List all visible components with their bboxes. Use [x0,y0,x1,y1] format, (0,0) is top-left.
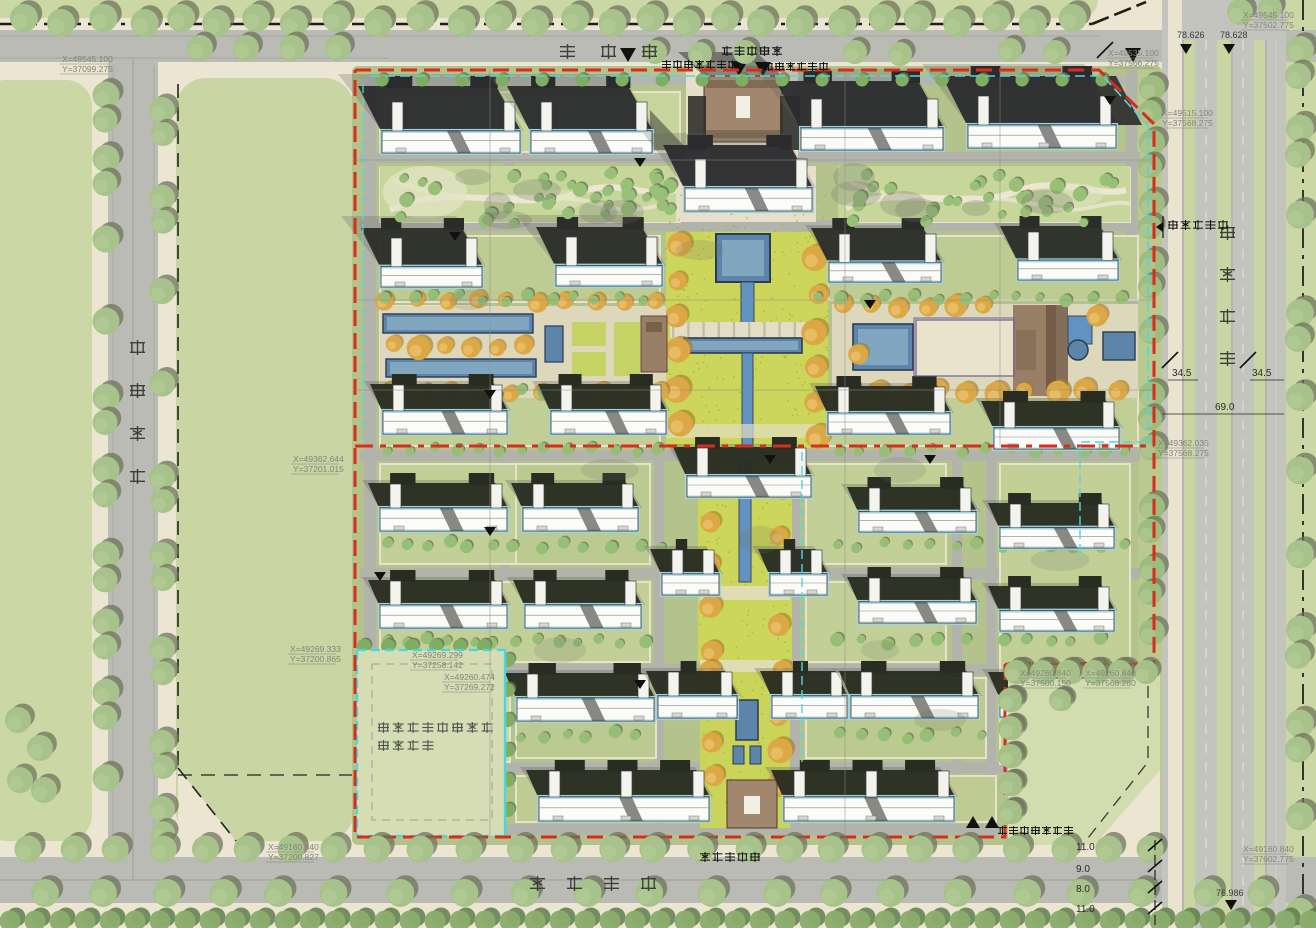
svg-text:X=49269.333: X=49269.333 [290,644,341,654]
svg-text:X=49535.100: X=49535.100 [1108,48,1159,58]
svg-text:Y=37200.827: Y=37200.827 [268,852,319,862]
svg-text:X=49545.100: X=49545.100 [1243,10,1294,20]
svg-text:78.628: 78.628 [1220,30,1248,40]
svg-text:78.626: 78.626 [1177,30,1205,40]
svg-text:X=49260.474: X=49260.474 [444,672,495,682]
svg-text:69.0: 69.0 [1215,402,1235,413]
svg-text:Y=37568.280: Y=37568.280 [1085,678,1136,688]
svg-text:Y=37269.272: Y=37269.272 [444,682,495,692]
svg-text:34.5: 34.5 [1252,368,1272,379]
svg-text:Y=37602.775: Y=37602.775 [1243,854,1294,864]
svg-text:76.986: 76.986 [1216,888,1244,898]
svg-text:X=49160.840: X=49160.840 [1243,844,1294,854]
svg-text:Y=37566.275: Y=37566.275 [1108,58,1159,68]
svg-text:11.0: 11.0 [1076,842,1095,853]
svg-text:X=49260.840: X=49260.840 [1085,668,1136,678]
svg-text:X=49160.840: X=49160.840 [268,842,319,852]
svg-text:Y=37568.275: Y=37568.275 [1162,118,1213,128]
svg-text:X=49545.100: X=49545.100 [62,54,113,64]
svg-text:9.0: 9.0 [1076,864,1090,875]
svg-text:Y=37200.865: Y=37200.865 [290,654,341,664]
svg-text:Y=37201.015: Y=37201.015 [293,464,344,474]
svg-text:8.0: 8.0 [1076,884,1090,895]
svg-text:34.5: 34.5 [1172,368,1192,379]
svg-text:X=49362.644: X=49362.644 [293,454,344,464]
svg-text:Y=37502.775: Y=37502.775 [1243,20,1294,30]
svg-text:Y=37568.275: Y=37568.275 [1158,448,1209,458]
svg-text:X=49269.299: X=49269.299 [412,650,463,660]
svg-text:Y=37258.142: Y=37258.142 [412,660,463,670]
svg-text:11.0: 11.0 [1076,904,1095,915]
svg-text:X=49362.035: X=49362.035 [1158,438,1209,448]
svg-text:Y=37500.150: Y=37500.150 [1020,678,1071,688]
svg-text:Y=37099.275: Y=37099.275 [62,64,113,74]
svg-text:X=49260.840: X=49260.840 [1020,668,1071,678]
svg-text:X=49515.100: X=49515.100 [1162,108,1213,118]
